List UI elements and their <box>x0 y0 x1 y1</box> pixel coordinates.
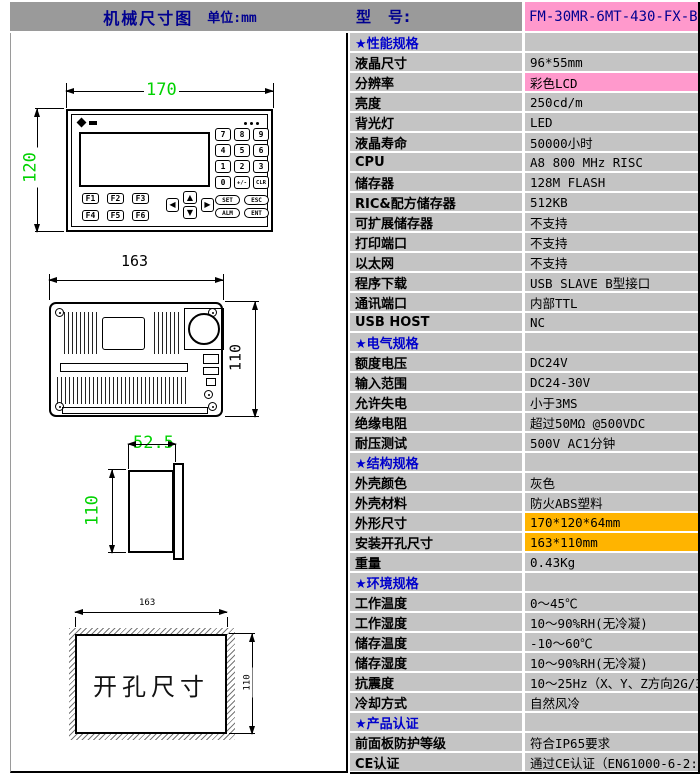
spec-label: 可扩展储存器 <box>350 213 522 231</box>
numpad-key: 1 <box>215 160 231 173</box>
dim-extension <box>75 617 76 627</box>
spec-value: 163*110mm <box>525 533 698 551</box>
spec-row: 液晶尺寸96*55mm <box>350 53 698 71</box>
spec-label: 冷却方式 <box>350 693 522 711</box>
spec-sheet-page: 机械尺寸图 单位:mm 170 120 7894561230+/-CLR F1F… <box>0 0 700 774</box>
spec-row: 可扩展储存器不支持 <box>350 213 698 231</box>
mechanical-title: 机械尺寸图 <box>103 5 193 29</box>
fkeys-key: F1 <box>82 193 99 204</box>
spec-value: 170*120*64mm <box>525 513 698 531</box>
dim-extension <box>273 83 274 108</box>
spec-label: 以太网 <box>350 253 522 271</box>
screw-icon <box>204 390 213 399</box>
spec-row: 冷却方式自然风冷 <box>350 693 698 711</box>
side-view-body <box>128 470 174 553</box>
spec-row: 前面板防护等级符合IP65要求 <box>350 733 698 751</box>
cutout-width-dim: 163 <box>138 599 156 608</box>
spec-value: 彩色LCD <box>525 73 698 91</box>
vent-slots <box>64 312 100 354</box>
spec-value: USB SLAVE B型接口 <box>525 273 698 291</box>
fkeys: F1F2F3F4F5F6 <box>82 193 149 221</box>
mechanical-panel: 机械尺寸图 单位:mm 170 120 7894561230+/-CLR F1F… <box>10 2 350 773</box>
spec-label: 程序下载 <box>350 273 522 291</box>
cutout-width-dim-line <box>75 612 227 613</box>
arrow-keys-key: ▲ <box>183 191 197 204</box>
spec-row: 额度电压DC24V <box>350 353 698 371</box>
spec-row: 安装开孔尺寸163*110mm <box>350 533 698 551</box>
numpad-key: 0 <box>215 176 231 189</box>
spec-value: 250cd/m <box>525 93 698 111</box>
spec-row: 程序下载USB SLAVE B型接口 <box>350 273 698 291</box>
connector-port <box>203 354 219 364</box>
spec-value: DC24V <box>525 353 698 371</box>
spec-value: 96*55mm <box>525 53 698 71</box>
spec-row: 液晶寿命50000小时 <box>350 133 698 151</box>
numpad-key: 5 <box>234 144 250 157</box>
spec-value: -10～60℃ <box>525 633 698 651</box>
spec-row: 亮度250cd/m <box>350 93 698 111</box>
spec-value: 0～45℃ <box>525 593 698 611</box>
spec-row: 储存器128M FLASH <box>350 173 698 191</box>
spec-row: 分辨率彩色LCD <box>350 73 698 91</box>
spec-row: RIC&配方储存器512KB <box>350 193 698 211</box>
spec-table-body: ★性能规格液晶尺寸96*55mm分辨率彩色LCD亮度250cd/m背光灯LED液… <box>350 33 698 771</box>
spec-value: 50000小时 <box>525 133 698 151</box>
spec-label: ★结构规格 <box>350 453 522 471</box>
spec-row: 外壳材料防火ABS塑料 <box>350 493 698 511</box>
ctrl-keys: SETESCALMENT <box>215 195 269 218</box>
arrow-keys: ◀▲▼▶ <box>166 191 214 219</box>
spec-label: 外壳颜色 <box>350 473 522 491</box>
spec-row: 工作温度0～45℃ <box>350 593 698 611</box>
fkeys-key: F3 <box>132 193 149 204</box>
fkeys-key: F2 <box>107 193 124 204</box>
model-label: 型 号: <box>350 2 522 31</box>
connector-port <box>206 378 216 386</box>
spec-value: 不支持 <box>525 213 698 231</box>
spec-label: USB HOST <box>350 313 522 331</box>
spec-label: 安装开孔尺寸 <box>350 533 522 551</box>
spec-value: 128M FLASH <box>525 173 698 191</box>
spec-value: 自然风冷 <box>525 693 698 711</box>
back-center-box <box>102 317 145 350</box>
cutout-height-dim: 110 <box>244 668 253 698</box>
front-height-dim: 120 <box>23 148 40 188</box>
dim-extension <box>227 617 228 627</box>
mechanical-unit: 单位:mm <box>207 7 256 26</box>
vent-slots <box>154 312 180 354</box>
connector-port <box>203 367 219 375</box>
back-bottom-slot <box>62 407 208 414</box>
spec-row: USB HOSTNC <box>350 313 698 331</box>
fkeys-key: F6 <box>132 210 149 221</box>
spec-row: CPUA8 800 MHz RISC <box>350 153 698 171</box>
dim-extension <box>66 83 67 108</box>
ctrl-keys-key: ALM <box>215 208 240 218</box>
spec-row: 储存温度-10～60℃ <box>350 633 698 651</box>
spec-label: 通讯端口 <box>350 293 522 311</box>
spec-label: ★性能规格 <box>350 33 522 51</box>
fkeys-key: F5 <box>107 210 124 221</box>
back-height-dim: 110 <box>229 339 244 377</box>
back-width-dim-line <box>49 280 223 281</box>
battery-icon <box>188 313 220 345</box>
ctrl-keys-key: ENT <box>244 208 269 218</box>
spec-value: DC24-30V <box>525 373 698 391</box>
front-view-device: 7894561230+/-CLR F1F2F3F4F5F6 ◀▲▼▶ SETES… <box>66 109 273 232</box>
vent-slots <box>57 377 188 404</box>
spec-row: 允许失电小于3MS <box>350 393 698 411</box>
spec-label: RIC&配方储存器 <box>350 193 522 211</box>
spec-label: 耐压测试 <box>350 433 522 451</box>
spec-value: 10～90%RH(无冷凝) <box>525 613 698 631</box>
spec-row: 重量0.43Kg <box>350 553 698 571</box>
battery-holder <box>184 308 224 350</box>
spec-row: 外壳颜色灰色 <box>350 473 698 491</box>
spec-section-row: ★产品认证 <box>350 713 698 731</box>
spec-value: A8 800 MHz RISC <box>525 153 698 171</box>
spec-row: 以太网不支持 <box>350 253 698 271</box>
spec-value: 512KB <box>525 193 698 211</box>
lcd-screen <box>79 132 210 187</box>
dim-extension <box>175 445 176 462</box>
front-width-dim: 170 <box>144 82 179 99</box>
spec-label: 前面板防护等级 <box>350 733 522 751</box>
numpad-key: 3 <box>253 160 269 173</box>
back-recess-slot <box>60 363 188 372</box>
spec-value: 10～90%RH(无冷凝) <box>525 653 698 671</box>
spec-value: 灰色 <box>525 473 698 491</box>
spec-panel: 型 号: FM-30MR-6MT-430-FX-B ★性能规格液晶尺寸96*55… <box>350 2 700 774</box>
spec-label: CPU <box>350 153 522 171</box>
back-width-dim: 163 <box>119 254 150 269</box>
spec-value: 500V AC1分钟 <box>525 433 698 451</box>
spec-section-row: ★性能规格 <box>350 33 698 51</box>
spec-label: 输入范围 <box>350 373 522 391</box>
fkeys-key: F4 <box>82 210 99 221</box>
screw-icon <box>55 308 64 317</box>
spec-value <box>525 713 698 731</box>
spec-value: 防火ABS塑料 <box>525 493 698 511</box>
model-value: FM-30MR-6MT-430-FX-B <box>525 2 698 31</box>
spec-section-row: ★电气规格 <box>350 333 698 351</box>
brand-logo-icon <box>89 121 97 125</box>
numpad-key: 7 <box>215 128 231 141</box>
numpad-key: +/- <box>234 176 250 189</box>
spec-label: 绝缘电阻 <box>350 413 522 431</box>
spec-row: 储存湿度10～90%RH(无冷凝) <box>350 653 698 671</box>
numpad-key: 9 <box>253 128 269 141</box>
spec-value: 0.43Kg <box>525 553 698 571</box>
spec-label: 液晶尺寸 <box>350 53 522 71</box>
spec-value: 不支持 <box>525 253 698 271</box>
spec-row: CE认证通过CE认证（EN61000-6-2:200S） <box>350 753 698 771</box>
side-height-dim: 110 <box>85 491 102 531</box>
arrow-keys-key: ▼ <box>183 206 197 219</box>
spec-section-row: ★环境规格 <box>350 573 698 591</box>
back-height-dim-line <box>255 302 256 417</box>
spec-value: 内部TTL <box>525 293 698 311</box>
spec-value: 小于3MS <box>525 393 698 411</box>
spec-label: 储存湿度 <box>350 653 522 671</box>
screw-icon <box>208 402 217 411</box>
spec-label: 额度电压 <box>350 353 522 371</box>
spec-label: 分辨率 <box>350 73 522 91</box>
spec-row: 抗震度10～25Hz（X、Y、Z方向2G/30分钟） <box>350 673 698 691</box>
spec-row: 打印端口不支持 <box>350 233 698 251</box>
ctrl-keys-key: ESC <box>244 195 269 205</box>
spec-label: 打印端口 <box>350 233 522 251</box>
spec-label: ★环境规格 <box>350 573 522 591</box>
dim-extension <box>128 445 129 469</box>
spec-label: 亮度 <box>350 93 522 111</box>
spec-value: LED <box>525 113 698 131</box>
status-led-dots-icon <box>256 122 259 125</box>
spec-row: 绝缘电阻超过50MΩ @500VDC <box>350 413 698 431</box>
spec-value: 10～25Hz（X、Y、Z方向2G/30分钟） <box>525 673 698 691</box>
spec-label: 工作温度 <box>350 593 522 611</box>
ctrl-keys-key: SET <box>215 195 240 205</box>
numpad-key: 4 <box>215 144 231 157</box>
spec-value: 符合IP65要求 <box>525 733 698 751</box>
spec-value: 不支持 <box>525 233 698 251</box>
spec-label: 重量 <box>350 553 522 571</box>
arrow-keys-key: ◀ <box>166 198 179 212</box>
arrow-keys-key: ▶ <box>201 198 214 212</box>
spec-row: 通讯端口内部TTL <box>350 293 698 311</box>
spec-label: 背光灯 <box>350 113 522 131</box>
spec-section-row: ★结构规格 <box>350 453 698 471</box>
numpad-key: 8 <box>234 128 250 141</box>
spec-label: 储存器 <box>350 173 522 191</box>
spec-value <box>525 453 698 471</box>
spec-row: 耐压测试500V AC1分钟 <box>350 433 698 451</box>
side-height-dim-line <box>112 470 113 553</box>
spec-value <box>525 33 698 51</box>
spec-value: 超过50MΩ @500VDC <box>525 413 698 431</box>
spec-label: 储存温度 <box>350 633 522 651</box>
spec-header-row: 型 号: FM-30MR-6MT-430-FX-B <box>350 2 698 31</box>
spec-label: 抗震度 <box>350 673 522 691</box>
spec-row: 背光灯LED <box>350 113 698 131</box>
spec-value <box>525 573 698 591</box>
cutout-label: 开孔尺寸 <box>93 667 209 702</box>
mechanical-drawings: 170 120 7894561230+/-CLR F1F2F3F4F5F6 ◀▲… <box>10 33 348 773</box>
spec-row: 工作湿度10～90%RH(无冷凝) <box>350 613 698 631</box>
spec-label: ★电气规格 <box>350 333 522 351</box>
spec-label: 工作湿度 <box>350 613 522 631</box>
cutout-opening: 开孔尺寸 <box>75 634 227 734</box>
spec-label: 外壳材料 <box>350 493 522 511</box>
spec-value: NC <box>525 313 698 331</box>
mechanical-header: 机械尺寸图 单位:mm <box>10 2 350 31</box>
spec-label: 外形尺寸 <box>350 513 522 531</box>
back-view-device <box>49 302 223 417</box>
side-depth-dim-line <box>128 444 176 445</box>
spec-value <box>525 333 698 351</box>
spec-value: 通过CE认证（EN61000-6-2:200S） <box>525 753 698 771</box>
spec-label: 液晶寿命 <box>350 133 522 151</box>
spec-row: 输入范围DC24-30V <box>350 373 698 391</box>
spec-label: ★产品认证 <box>350 713 522 731</box>
numpad-key: 2 <box>234 160 250 173</box>
numpad-key: CLR <box>253 176 269 189</box>
side-view-flange <box>173 463 184 560</box>
spec-label: 允许失电 <box>350 393 522 411</box>
numpad: 7894561230+/-CLR <box>215 128 269 189</box>
numpad-key: 6 <box>253 144 269 157</box>
spec-label: CE认证 <box>350 753 522 771</box>
spec-row: 外形尺寸170*120*64mm <box>350 513 698 531</box>
